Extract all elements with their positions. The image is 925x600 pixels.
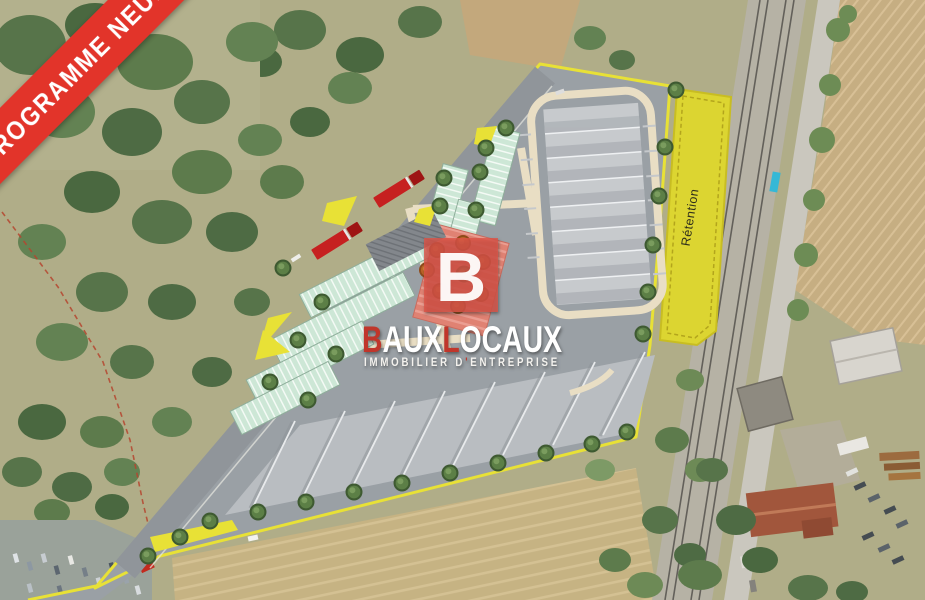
aerial-site-plan-image: Rétention (0, 0, 925, 600)
brand-monogram: B (436, 238, 487, 316)
wordmark-seg-aux: AUX (382, 319, 442, 360)
tagline-part2: ENTREPRISE (470, 355, 560, 369)
brand-wordmark: BAUXLOCAUX (362, 319, 562, 360)
wordmark-seg-ocaux: OCAUX (460, 319, 563, 360)
brand-tagline: IMMOBILIER D'ENTREPRISE (364, 355, 560, 369)
wordmark-seg-b: B (362, 319, 382, 360)
scene: Rétention (0, 0, 925, 600)
tagline-part1: IMMOBILIER D (364, 355, 465, 369)
wordmark-seg-l: L (442, 319, 459, 360)
